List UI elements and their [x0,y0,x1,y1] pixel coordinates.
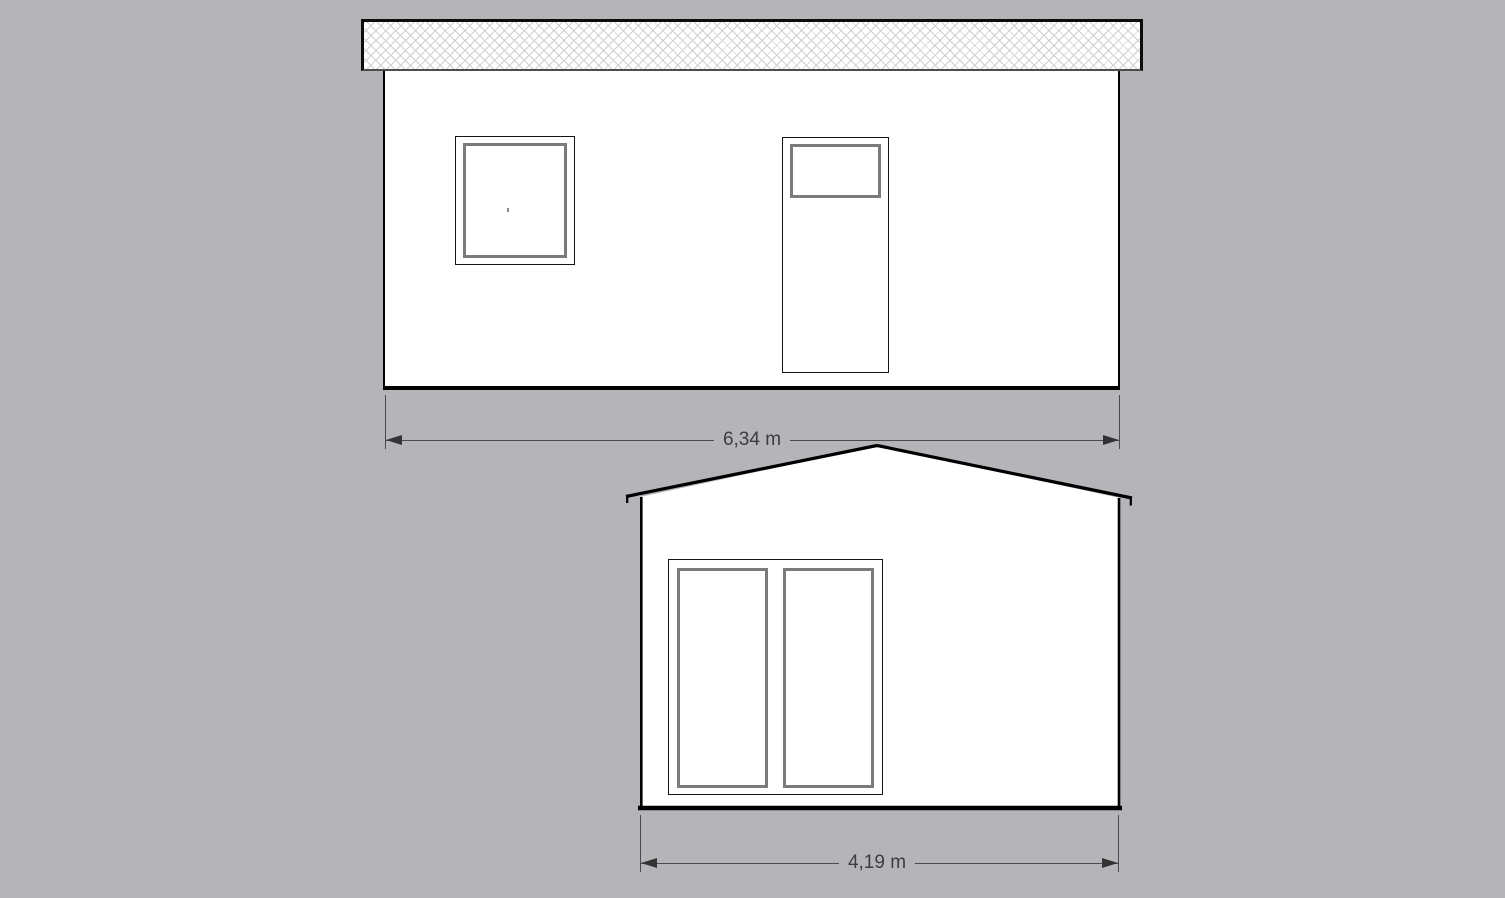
dimension-label-gable-width: 4,19 m [839,852,915,874]
side-window [455,136,575,265]
stray-mark [507,208,509,212]
dimension-arrowhead-left-icon [386,435,402,445]
roof-fascia-hatched [361,19,1143,71]
double-window-panel-right [783,568,874,788]
dimension-arrowhead-right-icon [1102,858,1118,868]
door [782,137,889,373]
dimension-label-side-width: 6,34 m [714,429,790,451]
double-window-panel-left [677,568,768,788]
side-window-frame [463,143,567,258]
drawing-canvas: 6,34 m 4,19 m [0,0,1505,898]
extension-line-right [1118,815,1119,872]
double-window [668,559,883,795]
dimension-arrowhead-left-icon [641,858,657,868]
door-transom-window [790,144,881,198]
